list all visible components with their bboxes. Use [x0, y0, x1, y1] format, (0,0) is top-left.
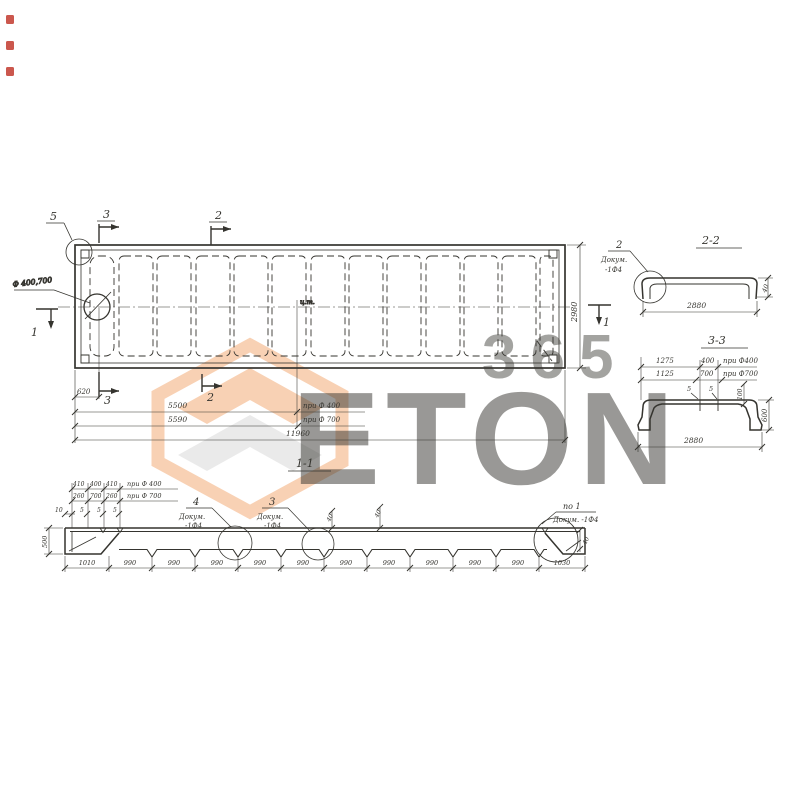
bottom-dim-9: 990: [469, 559, 481, 567]
callout-4-num: 4: [192, 497, 199, 508]
note-5500: при Ф 400: [303, 402, 341, 410]
note-5590: при Ф 700: [303, 416, 341, 424]
section-1-1-left-dim: 500: [41, 525, 63, 557]
dim-5a: 5: [687, 385, 691, 393]
note-700: при Ф700: [723, 370, 758, 378]
section-3-3-title: 3-3: [708, 334, 726, 347]
section-2-2-dims: 40 2880: [640, 275, 773, 317]
callout-2-num: 2: [615, 240, 622, 251]
dim-5b: 5: [709, 385, 713, 393]
bottom-dim-2: 990: [168, 559, 180, 567]
bottom-dim-3: 990: [211, 559, 223, 567]
callout-po1-doc: Докум. -1Ф4: [552, 516, 598, 524]
section-2-2: 2-2 2 Докум. -1Ф4 40 2880: [600, 234, 773, 317]
dim-700b: 700: [90, 493, 102, 500]
dim-5a: 5: [80, 507, 84, 514]
bottom-dim-4: 990: [254, 559, 266, 567]
marker-3-bottom: 3: [99, 372, 119, 407]
bottom-dim-6: 990: [340, 559, 352, 567]
section-1-1-dims-top: 410 400 410 при Ф 400 260 700 260 при Ф …: [55, 480, 178, 528]
dim-500: 500: [41, 536, 49, 548]
dim-400: 400: [700, 357, 715, 365]
dim-40c: 40: [581, 536, 591, 547]
bottom-dim-10: 990: [512, 559, 524, 567]
dim-400b: 400: [89, 481, 102, 488]
marker-5-label: 5: [50, 210, 57, 223]
marker-1-right-label: 1: [603, 316, 610, 329]
blueprint-page: ETON 365: [0, 0, 800, 800]
dim-260c: 260: [105, 493, 118, 500]
plan-hole: [84, 292, 111, 399]
dim-40-flange: 40: [760, 283, 771, 294]
dim-260a: 260: [72, 493, 85, 500]
bottom-dim-7: 990: [383, 559, 395, 567]
dim-620: 620: [77, 388, 91, 396]
section-1-1-title: 1-1: [296, 457, 314, 470]
dim-5590: 5590: [168, 415, 187, 424]
dim-600: 600: [761, 408, 769, 422]
bottom-dim-5: 990: [297, 559, 309, 567]
marker-2-bottom-label: 2: [206, 391, 214, 404]
plan-height-dim: 2980: [570, 302, 579, 323]
ct-label: ц.т.: [300, 298, 315, 306]
page-edge-artifacts: [6, 15, 14, 76]
bottom-dim-0: 1010: [79, 559, 96, 567]
note-f400: при Ф 400: [127, 480, 161, 488]
callout-3-num: 3: [269, 497, 275, 508]
callout-po1-num: по 1: [563, 502, 581, 511]
note-f700: при Ф 700: [127, 492, 161, 500]
marker-2-top: 2: [209, 209, 231, 245]
bottom-dim-1: 990: [124, 559, 136, 567]
dim-40a: 40: [325, 513, 335, 524]
callout-2-doc: Докум.: [600, 256, 627, 264]
watermark: ETON 365: [158, 323, 680, 512]
bottom-dim-11: 1030: [554, 559, 571, 567]
marker-1-left-label: 1: [31, 326, 38, 339]
section-1-1-profile: [65, 528, 585, 557]
dim-5500: 5500: [168, 401, 187, 410]
callout-4-ref: -1Ф4: [185, 522, 202, 530]
dim-410a: 410: [72, 481, 85, 488]
section-2-2-callout: 2 Докум. -1Ф4: [600, 240, 666, 303]
note-400: при Ф400: [723, 357, 758, 365]
callout-4-doc: Докум.: [178, 513, 205, 521]
dim-100: 100: [737, 388, 744, 400]
dim-1125: 1125: [656, 370, 674, 378]
marker-3-top: 3: [97, 208, 119, 243]
marker-2-top-label: 2: [214, 209, 222, 222]
dim-700: 700: [700, 370, 714, 378]
hole-diameter-label: Ф 400,700: [12, 275, 53, 289]
callout-3-ref: -1Ф4: [264, 522, 281, 530]
marker-1-left: 1: [31, 309, 58, 339]
hole-label-group: Ф 400,700: [12, 275, 90, 303]
dim-5b: 5: [97, 507, 101, 514]
dim-410c: 410: [105, 481, 118, 488]
dim-2880-b: 2880: [683, 436, 703, 445]
marker-3-bottom-label: 3: [104, 394, 111, 407]
drawing-svg: ETON 365: [0, 0, 800, 800]
dim-10: 10: [55, 507, 63, 514]
bottom-dim-8: 990: [426, 559, 438, 567]
callout-3-doc: Докум.: [256, 513, 283, 521]
callout-2-ref: -1Ф4: [605, 266, 622, 274]
dim-5c: 5: [113, 507, 117, 514]
dim-2880-a: 2880: [686, 301, 706, 310]
marker-3-top-label: 3: [103, 208, 110, 221]
section-2-2-title: 2-2: [701, 234, 720, 247]
dim-11960: 11960: [286, 429, 310, 438]
section-2-2-profile: [642, 278, 757, 299]
dim-1275: 1275: [656, 357, 674, 365]
